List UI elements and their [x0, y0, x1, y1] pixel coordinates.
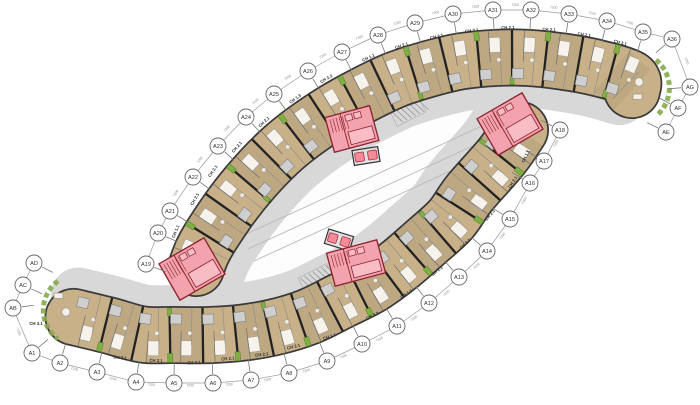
grid-axis-bubble: AD — [26, 255, 42, 271]
axis-tick — [319, 341, 323, 352]
grid-axis-bubble: A22 — [185, 169, 201, 185]
balcony-planter — [545, 32, 551, 42]
grid-axis-bubble: A36 — [664, 31, 680, 47]
grid-axis-bubble: A28 — [370, 27, 386, 43]
axis-tick — [353, 325, 358, 336]
dimension-text: 7200 — [471, 4, 479, 9]
unit-type-label: CH 2.1 — [113, 354, 127, 360]
grid-axis-bubble: A9 — [319, 353, 335, 369]
axis-tick — [386, 308, 392, 318]
axis-tick — [417, 32, 420, 44]
table — [530, 58, 534, 62]
grid-axis-label: A5 — [171, 381, 178, 387]
bathroom — [170, 314, 181, 324]
grid-axis-label: A7 — [248, 378, 255, 384]
table — [467, 188, 471, 192]
dimension-text: 7200 — [196, 156, 204, 164]
dimension-text: 7200 — [302, 368, 311, 374]
table — [155, 331, 159, 335]
axis-tick — [31, 289, 42, 294]
dimension-text: 7200 — [223, 125, 231, 133]
grid-axis-label: AB — [9, 306, 17, 312]
grid-axis-label: A34 — [602, 19, 612, 25]
table — [240, 193, 244, 197]
grid-axis-label: A36 — [667, 37, 677, 43]
unit-floor-shade — [545, 59, 578, 64]
grid-axis-bubble: AF — [670, 100, 686, 116]
unit-type-label: CH 2.1 — [207, 164, 219, 178]
dimension-text: 7200 — [339, 353, 348, 360]
dimension-text: 7200 — [251, 98, 259, 106]
table — [399, 259, 403, 263]
grid-axis-label: AC — [19, 283, 27, 289]
grid-axis-bubble: AB — [5, 300, 21, 316]
table — [285, 145, 289, 149]
table — [497, 58, 501, 62]
table — [262, 168, 266, 172]
grid-axis-bubble: A32 — [523, 2, 539, 18]
grid-axis-bubble: A27 — [334, 44, 350, 60]
axis-tick — [200, 182, 210, 189]
bed — [181, 341, 192, 356]
unit-floor-shade — [479, 57, 512, 59]
balcony-planter — [235, 352, 241, 361]
grid-axis-label: A3 — [94, 370, 101, 376]
grid-axis-label: A14 — [482, 249, 492, 255]
grid-axis-label: A2 — [57, 361, 64, 367]
unit-type-label: CH 2.1 — [501, 25, 515, 31]
grid-axis-label: A23 — [213, 144, 223, 150]
dimension-text: 7200 — [550, 5, 558, 10]
table — [489, 163, 493, 167]
grid-axis-label: AD — [30, 261, 38, 267]
dining-table — [54, 293, 63, 299]
dimension-text: 7200 — [588, 11, 596, 16]
table — [187, 331, 191, 335]
dimension-text: 7200 — [148, 383, 156, 387]
bathroom — [264, 306, 277, 318]
grid-axis-bubble: A16 — [522, 175, 538, 191]
grid-axis-label: A25 — [269, 92, 279, 98]
dimension-text: 7200 — [355, 34, 364, 41]
axis-tick — [279, 101, 286, 111]
dimension-text: 7200 — [625, 20, 633, 26]
grid-axis-bubble: A31 — [485, 2, 501, 18]
grid-axis-label: A27 — [337, 50, 347, 56]
grid-axis-bubble: A7 — [243, 372, 259, 388]
dimension-text: 7200 — [393, 20, 402, 26]
axis-tick — [381, 43, 385, 54]
grid-axis-label: A32 — [526, 8, 536, 14]
grid-axis-bubble: A6 — [205, 375, 221, 391]
grid-axis-bubble: A11 — [389, 318, 405, 334]
table — [399, 77, 403, 81]
dimension-text: 7200 — [109, 376, 117, 382]
dimension-text: 7200 — [683, 57, 689, 66]
grid-axis-label: A17 — [539, 159, 549, 165]
grid-axis-label: A35 — [638, 30, 648, 36]
table — [563, 62, 567, 66]
axis-tick — [39, 339, 48, 347]
grid-axis-bubble: A20 — [150, 225, 166, 241]
unit-floor-shade — [105, 325, 137, 334]
grid-axis-label: A15 — [505, 217, 515, 223]
table — [431, 68, 435, 72]
unit-type-label: CH 2.1 — [542, 27, 556, 33]
axis-tick — [178, 216, 188, 222]
grid-axis-label: AG — [686, 85, 694, 91]
grid-axis-bubble: A25 — [266, 86, 282, 102]
grid-axis-bubble: AG — [682, 79, 698, 95]
table — [123, 326, 127, 330]
grid-axis-label: A19 — [141, 262, 151, 268]
grid-axis-bubble: A15 — [502, 211, 518, 227]
grid-axis-bubble: A4 — [128, 374, 144, 390]
dimension-text: 7200 — [263, 377, 271, 382]
dimension-text: 7200 — [283, 74, 292, 82]
dimension-text: 7200 — [186, 384, 194, 388]
dimension-text: 7200 — [319, 52, 328, 59]
axis-tick — [471, 237, 480, 245]
unit-floor-shade — [236, 329, 269, 334]
round-table — [62, 308, 70, 316]
dimension-text: 7200 — [552, 139, 559, 148]
grid-axis-label: A30 — [448, 12, 458, 18]
grid-axis-bubble: A8 — [281, 365, 297, 381]
grid-axis-bubble: A10 — [354, 336, 370, 352]
grid-axis-bubble: A5 — [166, 375, 182, 391]
dining-table — [633, 94, 642, 100]
grid-axis-bubble: A3 — [89, 364, 105, 380]
bathroom — [449, 73, 462, 85]
table — [464, 60, 468, 64]
grid-axis-bubble: A34 — [599, 13, 615, 29]
bed — [489, 37, 501, 53]
table — [285, 320, 289, 324]
dimension-text: 7200 — [225, 382, 233, 387]
bathroom — [234, 311, 246, 322]
table — [220, 330, 224, 334]
grid-axis-label: A16 — [525, 181, 535, 187]
axis-tick — [22, 305, 34, 307]
grid-axis-bubble: A30 — [445, 6, 461, 22]
unit-type-label: CH 2.1 — [149, 358, 163, 363]
table — [253, 327, 257, 331]
bathroom — [480, 69, 492, 80]
grid-axis-label: A13 — [454, 275, 464, 281]
grid-axis-bubble: A24 — [238, 109, 254, 125]
table — [627, 78, 631, 82]
grid-axis-label: A31 — [488, 8, 498, 14]
axis-tick — [313, 79, 319, 89]
bathroom — [139, 313, 151, 324]
axis-tick — [647, 123, 658, 128]
table — [373, 278, 377, 282]
grid-axis-label: A18 — [555, 128, 565, 134]
grid-axis-label: A20 — [153, 231, 163, 237]
grid-axis-bubble: A13 — [451, 269, 467, 285]
table — [424, 237, 428, 241]
grid-axis-bubble: A35 — [635, 24, 651, 40]
dimension-text: 7200 — [172, 189, 180, 198]
grid-axis-label: A28 — [373, 33, 383, 39]
grid-axis-label: A6 — [210, 381, 217, 387]
grid-axis-label: AE — [662, 130, 670, 136]
grid-axis-label: A12 — [424, 301, 434, 307]
table — [448, 215, 452, 219]
round-table — [635, 78, 643, 86]
unit-type-label: CH 2.1 — [187, 360, 201, 366]
grid-axis-bubble: A29 — [407, 15, 423, 31]
dimension-text: 7200 — [431, 10, 439, 16]
table — [345, 294, 349, 298]
grid-axis-label: A22 — [188, 175, 198, 181]
grid-axis-label: A26 — [303, 69, 313, 75]
grid-axis-label: A4 — [133, 380, 140, 386]
floor-plan-stage: 7200720072007200720072007200720072007200… — [0, 0, 700, 400]
grid-axis-bubble: A2 — [52, 355, 68, 371]
table — [91, 317, 95, 321]
grid-axis-label: A33 — [564, 12, 574, 18]
bed — [148, 341, 159, 356]
table — [369, 91, 373, 95]
axis-tick — [63, 343, 66, 355]
grid-axis-bubble: A17 — [536, 153, 552, 169]
table — [312, 125, 316, 129]
axis-tick — [346, 60, 351, 71]
grid-axis-label: AF — [674, 106, 682, 112]
grid-axis-bubble: A14 — [479, 243, 495, 259]
bathroom — [76, 297, 89, 309]
unit-floor-shade — [353, 85, 383, 100]
elevator-bank — [352, 147, 380, 166]
table — [315, 308, 319, 312]
unit-floor-shade — [300, 307, 330, 320]
grid-axis-label: A1 — [29, 351, 36, 357]
grid-axis-bubble: A1 — [24, 345, 40, 361]
grid-axis-label: A24 — [241, 115, 251, 121]
grid-axis-bubble: A26 — [300, 63, 316, 79]
grid-axis-label: A29 — [410, 21, 420, 27]
grid-axis-bubble: A21 — [162, 203, 178, 219]
grid-axis-bubble: A18 — [552, 122, 568, 138]
dimension-text: 7200 — [511, 3, 519, 7]
grid-axis-bubble: AC — [15, 277, 31, 293]
balcony-planter — [474, 31, 480, 40]
grid-axis-bubble: A33 — [561, 6, 577, 22]
grid-axis-label: A11 — [392, 324, 402, 330]
unit-type-label: CH 3.1 — [29, 321, 43, 326]
grid-axis-bubble: AE — [658, 124, 674, 140]
dimension-text: 7200 — [70, 366, 78, 372]
axis-tick — [416, 287, 423, 296]
grid-axis-label: A8 — [286, 371, 293, 377]
grid-axis-label: A21 — [165, 209, 175, 215]
bathroom — [543, 70, 555, 81]
bathroom — [575, 75, 588, 87]
axis-tick — [42, 267, 53, 272]
grid-axis-bubble: A23 — [210, 138, 226, 154]
balcony-planter — [168, 353, 173, 362]
grid-axis-bubble: A19 — [138, 256, 154, 272]
table — [220, 220, 224, 224]
axis-tick — [669, 88, 681, 89]
bathroom — [512, 68, 523, 78]
bed — [524, 37, 536, 53]
unit-floor-shade — [414, 64, 446, 73]
bed — [214, 340, 226, 356]
floor-plan-canvas: 7200720072007200720072007200720072007200… — [0, 0, 700, 400]
axis-tick — [99, 352, 102, 364]
dimension-text: 7200 — [15, 328, 22, 337]
table — [340, 107, 344, 111]
axis-tick — [284, 353, 287, 365]
grid-axis-bubble: A12 — [421, 295, 437, 311]
grid-axis-label: A9 — [324, 359, 331, 365]
grid-axis-label: A10 — [357, 342, 367, 348]
axis-tick — [445, 261, 453, 270]
table — [595, 68, 599, 72]
bathroom — [203, 314, 214, 324]
axis-tick — [656, 45, 665, 53]
